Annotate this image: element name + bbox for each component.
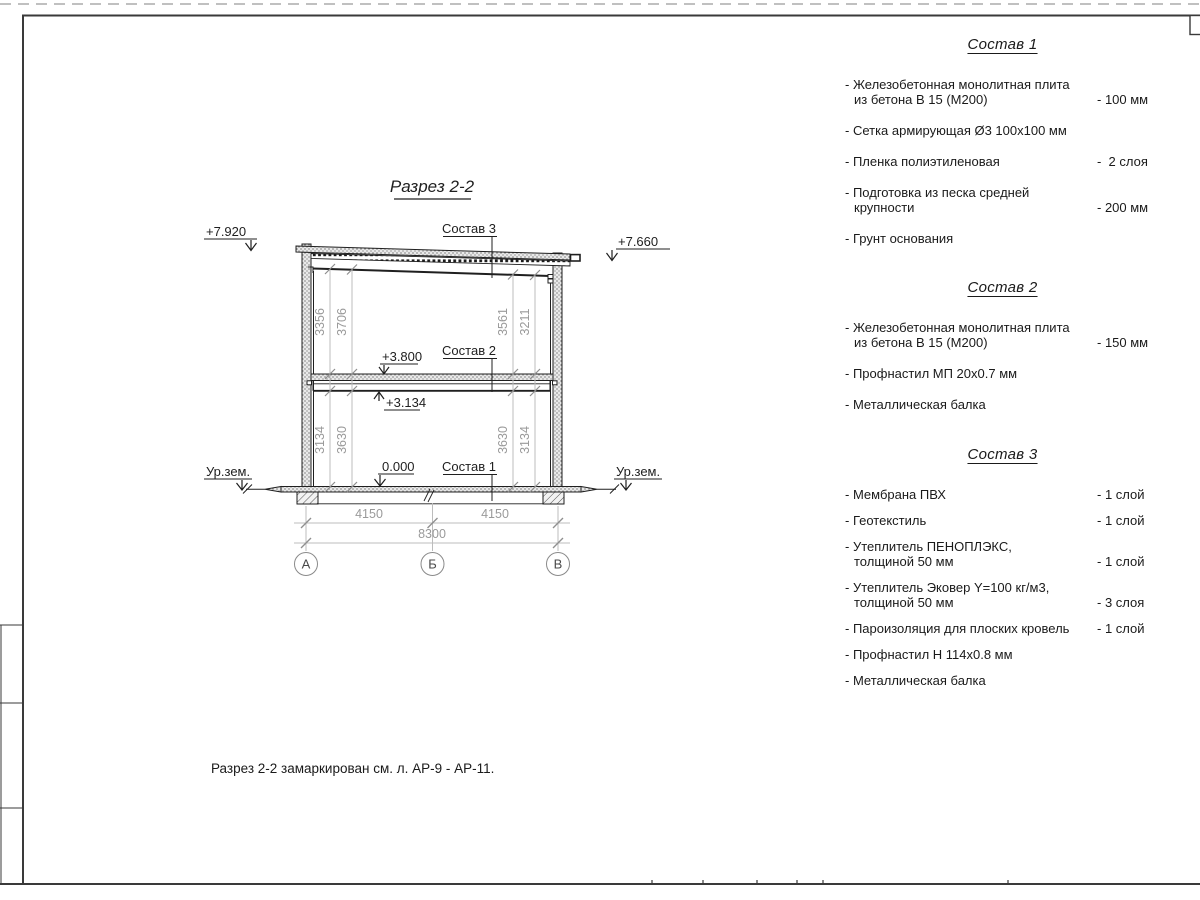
composition-item: - Грунт основания	[845, 231, 1160, 246]
item-text: - Пароизоляция для плоских кровель	[845, 621, 1097, 636]
callout-sostav2-label: Состав 2	[442, 343, 496, 358]
dim-3561: 3561	[496, 308, 510, 336]
item-thickness: - 1 слой	[1097, 513, 1159, 528]
floor-slab	[311, 374, 553, 381]
composition-item: - Профнастил Н 114х0.8 мм	[845, 647, 1160, 662]
dim-3211: 3211	[518, 309, 532, 336]
dim-4150-left: 4150	[355, 507, 383, 521]
elevation-beam-bottom-label: +3.134	[386, 395, 426, 410]
dim-3630-left: 3630	[335, 426, 349, 454]
composition-item: - Мембрана ПВХ - 1 слой	[845, 487, 1160, 502]
axis-label-b: Б	[428, 557, 437, 572]
callout-sostav1-label: Состав 1	[442, 459, 496, 474]
item-text: - Железобетонная монолитная плита	[845, 77, 1097, 92]
ground-slab-left-taper	[265, 487, 281, 493]
dim-3356: 3356	[313, 308, 327, 336]
elevation-ground-floor-label: 0.000	[382, 459, 415, 474]
elevation-floor-slab-label: +3.800	[382, 349, 422, 364]
item-text: - Железобетонная монолитная плита	[845, 320, 1097, 335]
item-text: - Утеплитель ПЕНОПЛЭКС,	[845, 539, 1097, 554]
composition-item: - Профнастил МП 20х0.7 мм	[845, 366, 1160, 381]
axis-label-v: В	[554, 557, 563, 572]
frame-corner-box	[1190, 16, 1200, 35]
elevation-roof-right: +7.660	[607, 234, 671, 261]
left-foundation-block	[297, 492, 318, 504]
item-thickness: - 100 мм	[1097, 92, 1159, 107]
item-text: - Подготовка из песка средней	[845, 185, 1097, 200]
item-text-line2: из бетона В 15 (М200)	[845, 92, 1097, 107]
item-text: - Пленка полиэтиленовая	[845, 154, 1097, 169]
roof-assembly	[296, 246, 580, 283]
middle-floor-assembly	[307, 374, 557, 391]
composition-item: - Железобетонная монолитная плитаиз бето…	[845, 320, 1160, 350]
composition-2-section: Состав 2 - Железобетонная монолитная пли…	[845, 279, 1160, 412]
bottom-dimensions: 4150 4150 8300	[294, 503, 570, 551]
roof-beam-right-bracket-b	[548, 279, 553, 283]
composition-1-heading: Состав 1	[845, 36, 1160, 54]
item-text-line2: крупности	[845, 200, 1097, 215]
item-text: - Металлическая балка	[845, 673, 1097, 688]
drawing-title: Разрез 2-2	[390, 177, 475, 196]
item-thickness: - 1 слой	[1097, 554, 1159, 569]
item-thickness: - 150 мм	[1097, 335, 1159, 350]
callout-sostav-2: Состав 2	[442, 343, 497, 392]
composition-3-section: Состав 3 - Мембрана ПВХ - 1 слой - Геоте…	[845, 446, 1160, 688]
axis-bubbles: А Б В	[295, 553, 570, 576]
item-thickness: - 1 слой	[1097, 621, 1159, 636]
item-thickness: - 200 мм	[1097, 200, 1159, 215]
item-text-line2: толщиной 50 мм	[845, 595, 1097, 610]
item-thickness: - 1 слой	[1097, 487, 1159, 502]
item-thickness: - 3 слоя	[1097, 595, 1159, 610]
dim-3706: 3706	[335, 308, 349, 336]
right-wall	[553, 253, 562, 487]
ground-slab-right-taper	[581, 487, 597, 493]
dim-4150-right: 4150	[481, 507, 509, 521]
composition-item: - Подготовка из песка среднейкрупности -…	[845, 185, 1160, 215]
composition-item: - Металлическая балка	[845, 397, 1160, 412]
dim-3134-right: 3134	[518, 426, 532, 454]
dim-3630-right: 3630	[496, 426, 510, 454]
item-text: - Геотекстиль	[845, 513, 1097, 528]
binding-edge-boxes	[0, 625, 22, 884]
right-foundation-block	[543, 492, 564, 504]
composition-item: - Пароизоляция для плоских кровель - 1 с…	[845, 621, 1160, 636]
axis-label-a: А	[302, 557, 311, 572]
item-text: - Профнастил МП 20х0.7 мм	[845, 366, 1097, 381]
item-text: - Металлическая балка	[845, 397, 1097, 412]
floor-left-bracket	[307, 381, 312, 385]
building-section	[243, 244, 619, 504]
left-wall	[302, 244, 311, 487]
composition-item: - Геотекстиль - 1 слой	[845, 513, 1160, 528]
ground-slab-assembly	[243, 485, 619, 505]
item-text-line2: толщиной 50 мм	[845, 554, 1097, 569]
composition-item: - Пленка полиэтиленовая - 2 слоя	[845, 154, 1160, 169]
composition-item: - Сетка армирующая Ø3 100х100 мм	[845, 123, 1160, 138]
dim-8300: 8300	[418, 527, 446, 541]
drawing-sheet: { "drawing": { "title": "Разрез 2-2", "e…	[0, 0, 1200, 900]
composition-item: - Металлическая балка	[845, 673, 1160, 688]
dim-3134-left: 3134	[313, 426, 327, 454]
callout-sostav-1: Состав 1	[442, 459, 497, 501]
item-text: - Утеплитель Эковер Y=100 кг/м3,	[845, 580, 1097, 595]
item-text-line2: из бетона В 15 (М200)	[845, 335, 1097, 350]
ground-level-left-label: Ур.зем.	[206, 464, 250, 479]
ground-level-right-label: Ур.зем.	[616, 464, 660, 479]
composition-item: - Железобетонная монолитная плитаиз бето…	[845, 77, 1160, 107]
item-text: - Грунт основания	[845, 231, 1097, 246]
composition-item: - Утеплитель ПЕНОПЛЭКС,толщиной 50 мм - …	[845, 539, 1160, 569]
elevation-ground-floor: 0.000	[375, 459, 415, 486]
item-text: - Мембрана ПВХ	[845, 487, 1097, 502]
floor-right-bracket	[553, 381, 558, 385]
composition-item: - Утеплитель Эковер Y=100 кг/м3,толщиной…	[845, 580, 1160, 610]
elevation-beam-bottom: +3.134	[374, 392, 426, 410]
sheet-note: Разрез 2-2 замаркирован см. л. АР-9 - АР…	[211, 761, 494, 776]
item-text: - Профнастил Н 114х0.8 мм	[845, 647, 1097, 662]
elevation-roof-left: +7.920	[204, 224, 257, 251]
ground-level-right: Ур.зем.	[614, 464, 662, 490]
item-text: - Сетка армирующая Ø3 100х100 мм	[845, 123, 1097, 138]
composition-3-heading: Состав 3	[845, 446, 1160, 464]
elevation-roof-left-label: +7.920	[206, 224, 246, 239]
callout-sostav-3: Состав 3	[442, 221, 497, 278]
item-thickness: - 2 слоя	[1097, 154, 1159, 169]
elevation-roof-right-label: +7.660	[618, 234, 658, 249]
roof-beam-right-bracket-a	[548, 275, 553, 279]
composition-1-section: Состав 1 - Железобетонная монолитная пли…	[845, 36, 1160, 246]
roof-edge-cap	[571, 255, 581, 261]
ground-level-left: Ур.зем.	[204, 464, 252, 490]
elevation-floor-slab: +3.800	[379, 349, 422, 374]
callout-sostav3-label: Состав 3	[442, 221, 496, 236]
composition-2-heading: Состав 2	[845, 279, 1160, 297]
